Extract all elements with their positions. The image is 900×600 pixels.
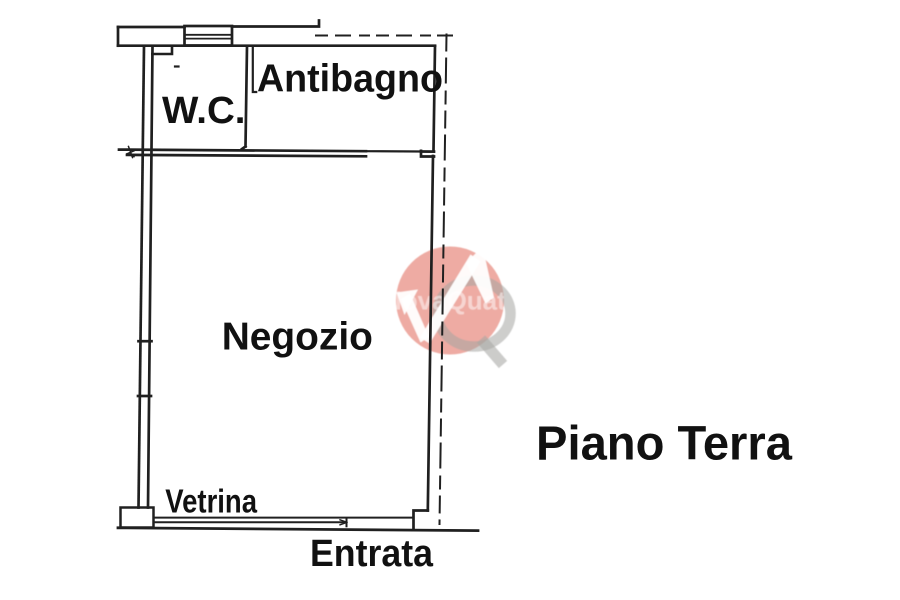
svg-text:Piano Terra: Piano Terra [536, 418, 792, 471]
svg-text:Entrata: Entrata [310, 533, 434, 575]
svg-text:Vetrina: Vetrina [165, 483, 257, 520]
svg-text:Negozio: Negozio [222, 315, 373, 358]
svg-text:Antibagno: Antibagno [257, 57, 443, 100]
svg-text:W.C.: W.C. [162, 90, 246, 132]
